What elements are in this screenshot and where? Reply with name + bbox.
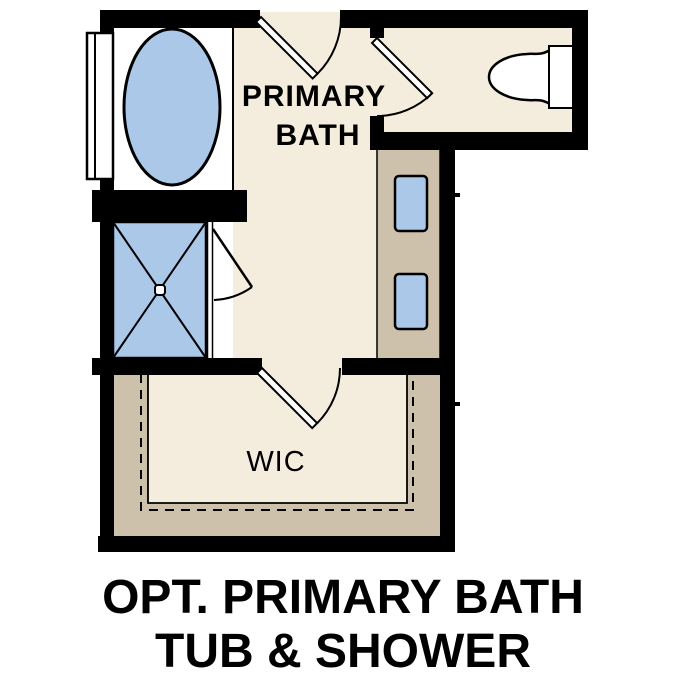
wall-bottom xyxy=(98,536,455,552)
wall-wc-bottom xyxy=(370,132,588,150)
room-label-wic: WIC xyxy=(246,446,305,478)
window xyxy=(87,33,113,179)
toilet-tank xyxy=(549,46,573,108)
room-label-primary-bath-line1: PRIMARY xyxy=(242,80,386,113)
window-frame xyxy=(87,33,113,179)
floor-plan-opt-primary-bath: PRIMARY BATH WIC OPT. PRIMARY BATH TUB &… xyxy=(0,0,687,687)
wall-top-left xyxy=(100,10,260,28)
wall-wic-top-left xyxy=(92,358,262,375)
wic-shelf-bottom xyxy=(114,503,440,538)
wall-wc-left-stub-bottom xyxy=(370,116,384,138)
wall-wc-right xyxy=(572,10,588,150)
wall-right-lower xyxy=(440,145,455,550)
wall-wc-left-stub-top xyxy=(370,20,384,38)
wall-wic-top-right xyxy=(342,358,455,375)
bathtub xyxy=(124,29,220,185)
caption-line2: TUB & SHOWER xyxy=(155,625,531,678)
wall-tub-divider xyxy=(92,190,247,222)
caption-line1: OPT. PRIMARY BATH xyxy=(102,571,584,624)
sink-basin-1 xyxy=(395,176,427,231)
shower xyxy=(113,222,252,358)
sink-basin-2 xyxy=(395,274,427,329)
wic-door-opening-floor xyxy=(260,356,344,375)
shower-drain xyxy=(155,285,165,295)
room-label-primary-bath-line2: BATH xyxy=(275,119,360,152)
